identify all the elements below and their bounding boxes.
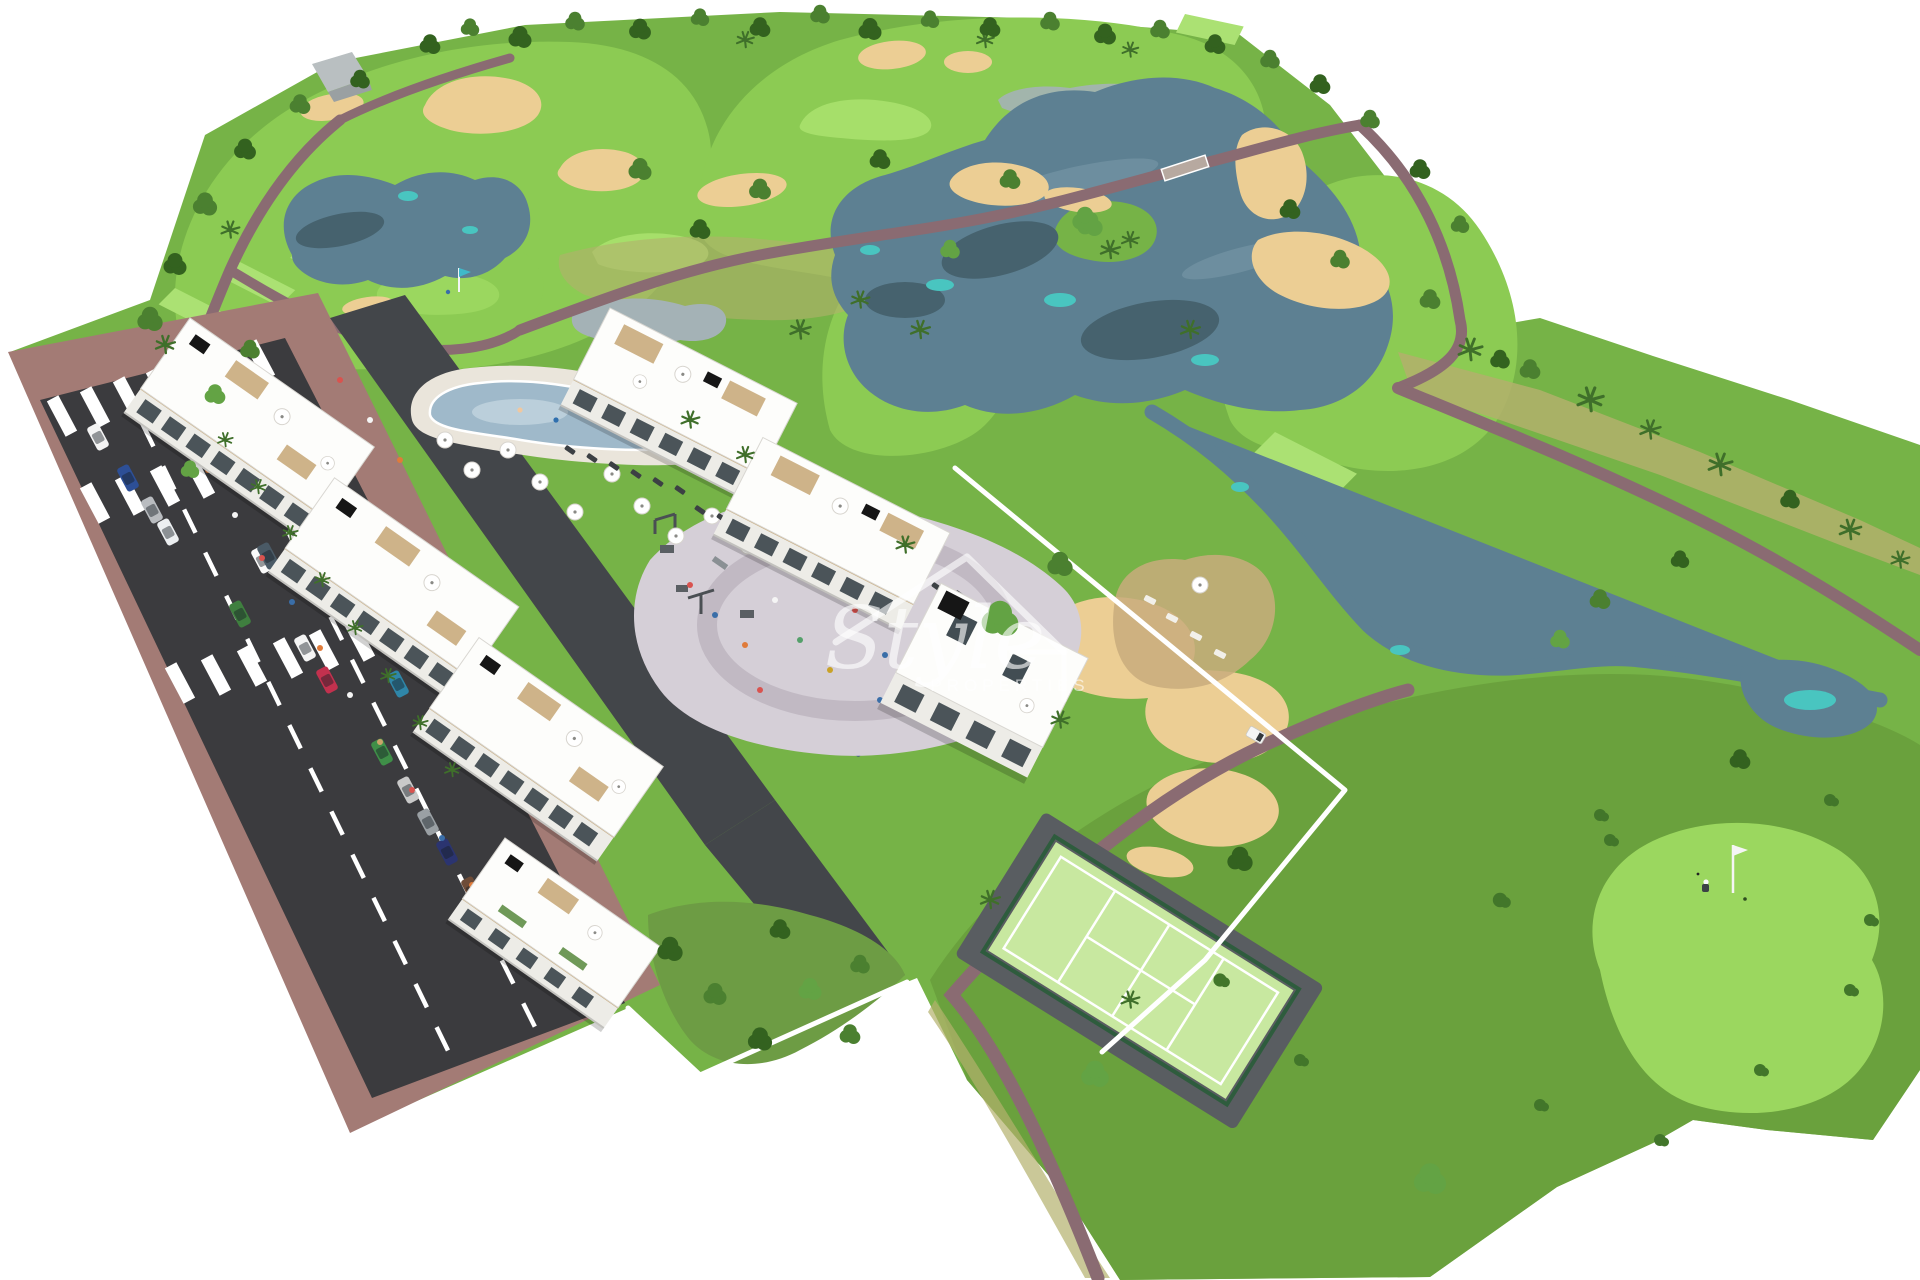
- umbrella-icon: [634, 498, 650, 514]
- bunker: [944, 51, 992, 73]
- golf-hole: [1743, 897, 1747, 901]
- tree-icon: [1310, 74, 1331, 94]
- lake-turquoise: [926, 279, 954, 291]
- umbrella-icon: [567, 504, 583, 520]
- umbrella-icon: [500, 442, 516, 458]
- aerial-render: Style PROPERTIES: [0, 0, 1920, 1280]
- tree-icon: [1150, 20, 1170, 39]
- tree-icon: [1360, 110, 1380, 129]
- bush-icon: [1654, 1134, 1669, 1147]
- tree-icon: [565, 12, 585, 31]
- watermark-subtitle: PROPERTIES: [930, 676, 1089, 695]
- stream-turquoise: [1231, 482, 1249, 492]
- tree-icon: [691, 8, 709, 26]
- tree-icon: [840, 1024, 861, 1044]
- swimmer: [517, 407, 522, 412]
- umbrella-icon: [1192, 577, 1208, 593]
- swimmer: [553, 417, 558, 422]
- render-canvas: Style PROPERTIES: [0, 0, 1920, 1280]
- watermark-brand: Style: [825, 589, 1045, 689]
- lake-turquoise: [398, 191, 418, 201]
- lake-turquoise: [462, 226, 478, 234]
- umbrella-icon: [668, 528, 684, 544]
- golfer: [446, 290, 450, 294]
- stream-turquoise: [1390, 645, 1410, 655]
- tree-icon: [461, 18, 479, 36]
- tree-icon: [1260, 50, 1280, 69]
- tree-icon: [921, 10, 939, 28]
- tree-icon: [1040, 12, 1060, 31]
- umbrella-icon: [437, 432, 453, 448]
- umbrella-icon: [532, 474, 548, 490]
- lake-turquoise: [860, 245, 880, 255]
- stream-turquoise: [1784, 690, 1836, 710]
- lake-turquoise: [1191, 354, 1219, 366]
- tree-icon: [420, 34, 441, 54]
- tree-icon: [1410, 159, 1431, 179]
- lake-turquoise: [1044, 293, 1076, 307]
- tree-icon: [810, 5, 830, 24]
- umbrella-icon: [464, 462, 480, 478]
